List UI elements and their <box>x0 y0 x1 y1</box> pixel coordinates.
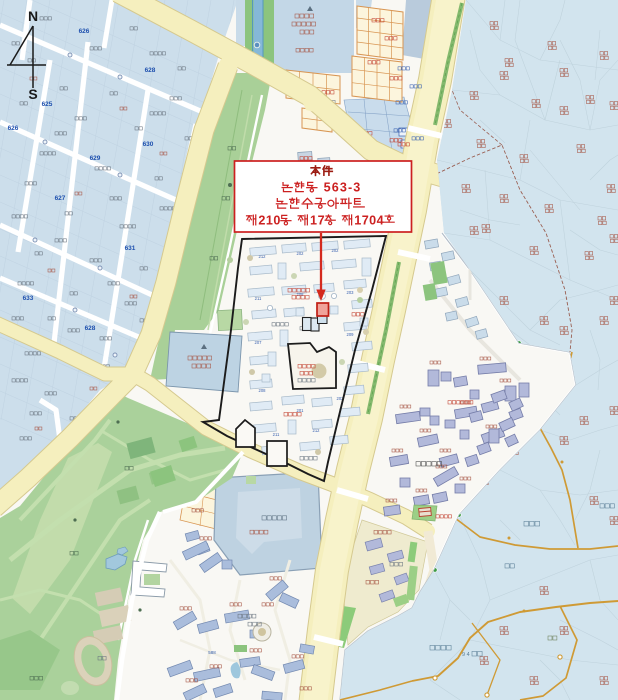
svg-text:207: 207 <box>255 340 263 345</box>
svg-text:17: 17 <box>310 214 325 228</box>
svg-text:626: 626 <box>8 125 19 132</box>
svg-text:202: 202 <box>332 248 340 253</box>
svg-text:208: 208 <box>259 388 267 393</box>
svg-text:630: 630 <box>143 141 154 148</box>
svg-text:628: 628 <box>145 67 156 74</box>
svg-text:S: S <box>28 86 37 102</box>
svg-text:N: N <box>28 8 38 24</box>
svg-text:629: 629 <box>90 155 101 162</box>
svg-text:211: 211 <box>273 432 280 437</box>
svg-text:211: 211 <box>255 296 262 301</box>
svg-text:626: 626 <box>79 28 90 35</box>
svg-text:209: 209 <box>347 332 355 337</box>
svg-text:631: 631 <box>125 245 136 252</box>
svg-text:1704: 1704 <box>354 214 383 228</box>
svg-text:212: 212 <box>259 254 267 259</box>
svg-text:633: 633 <box>23 295 34 302</box>
svg-text:210: 210 <box>258 214 280 228</box>
svg-text:625: 625 <box>42 101 53 108</box>
svg-text:588: 588 <box>208 650 216 655</box>
svg-text:203: 203 <box>347 290 355 295</box>
svg-text:9 4: 9 4 <box>462 652 470 658</box>
svg-text:212: 212 <box>313 428 321 433</box>
svg-text:628: 628 <box>85 325 96 332</box>
svg-text:563-3: 563-3 <box>324 181 361 195</box>
svg-text:202: 202 <box>297 251 305 256</box>
svg-text:627: 627 <box>55 195 66 202</box>
